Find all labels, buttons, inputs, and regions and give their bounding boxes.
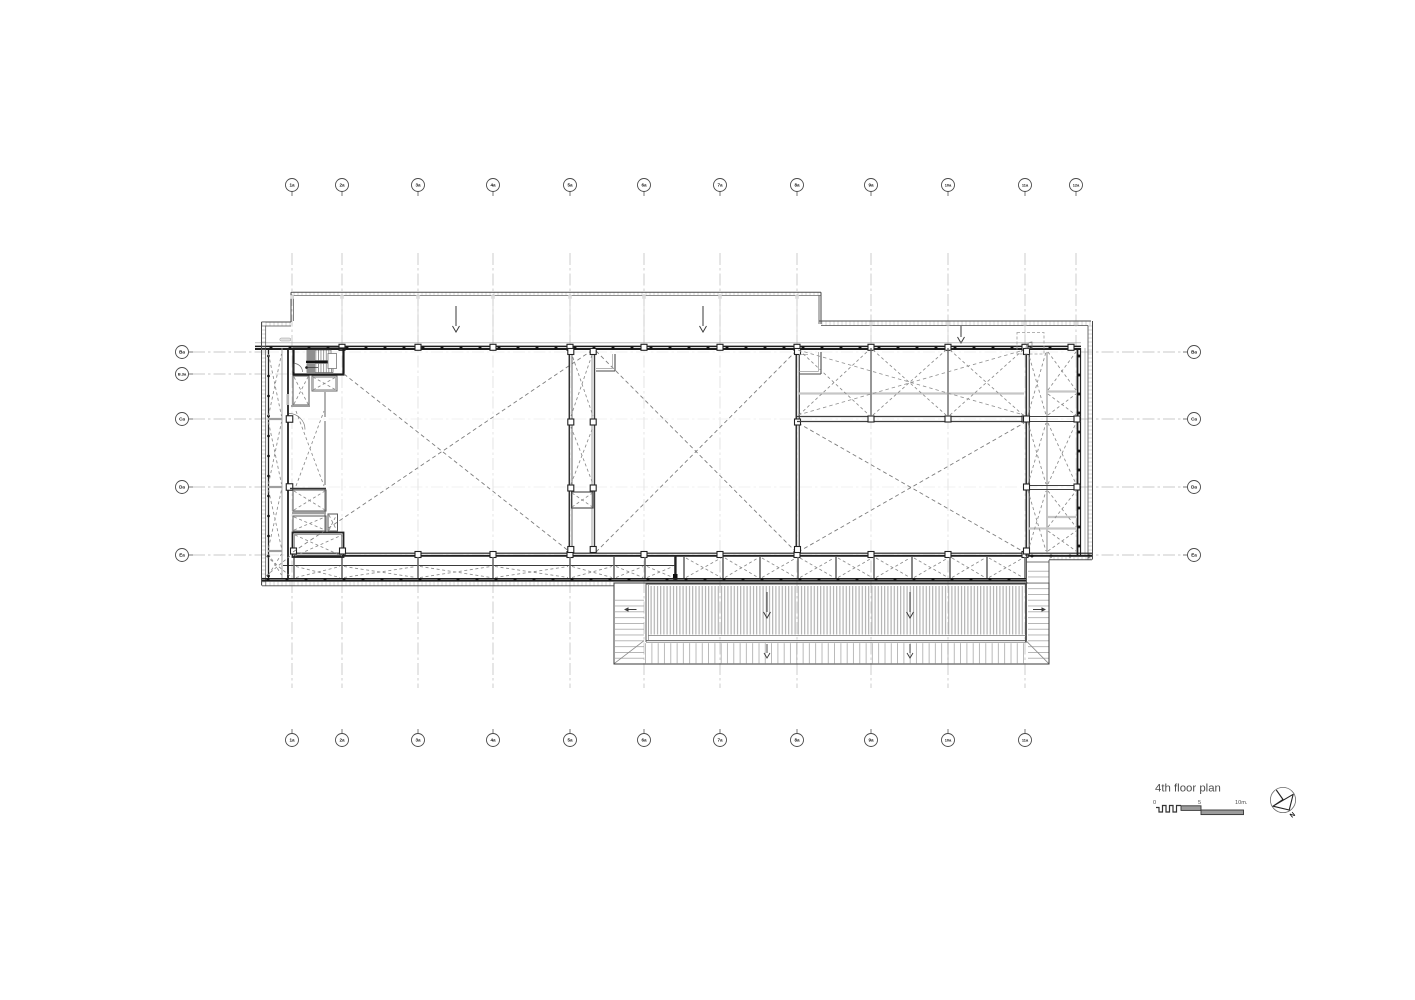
svg-text:Da: Da xyxy=(1191,485,1197,490)
svg-text:3a: 3a xyxy=(415,738,421,743)
svg-text:3a: 3a xyxy=(415,183,421,188)
svg-text:6a: 6a xyxy=(641,183,647,188)
svg-text:8a: 8a xyxy=(794,183,800,188)
svg-text:N: N xyxy=(1289,811,1297,820)
svg-text:10m.: 10m. xyxy=(1235,800,1248,806)
svg-text:5: 5 xyxy=(1198,800,1201,806)
svg-text:7a: 7a xyxy=(717,738,723,743)
svg-text:11a: 11a xyxy=(1022,738,1029,743)
svg-text:9a: 9a xyxy=(868,738,874,743)
svg-text:Ea: Ea xyxy=(1191,553,1197,558)
svg-text:2a: 2a xyxy=(339,183,345,188)
svg-text:11a: 11a xyxy=(1022,183,1029,188)
svg-text:7a: 7a xyxy=(717,183,723,188)
svg-text:9a: 9a xyxy=(868,183,874,188)
svg-text:6a: 6a xyxy=(641,738,647,743)
svg-text:B.3a: B.3a xyxy=(178,372,187,377)
svg-text:Ba: Ba xyxy=(1191,350,1197,355)
svg-text:10a: 10a xyxy=(945,183,952,188)
svg-text:Da: Da xyxy=(179,485,185,490)
svg-text:Ca: Ca xyxy=(1191,417,1197,422)
svg-text:12a: 12a xyxy=(1073,183,1080,188)
svg-text:Ca: Ca xyxy=(179,417,185,422)
svg-text:1a: 1a xyxy=(289,738,295,743)
svg-text:Ea: Ea xyxy=(179,553,185,558)
svg-text:10a: 10a xyxy=(945,738,952,743)
svg-text:5a: 5a xyxy=(567,738,573,743)
svg-text:1a: 1a xyxy=(289,183,295,188)
svg-text:Ba: Ba xyxy=(179,350,185,355)
svg-text:4a: 4a xyxy=(490,183,496,188)
svg-text:4th floor plan: 4th floor plan xyxy=(1155,783,1221,795)
svg-text:5a: 5a xyxy=(567,183,573,188)
svg-text:4a: 4a xyxy=(490,738,496,743)
svg-text:2a: 2a xyxy=(339,738,345,743)
svg-text:8a: 8a xyxy=(794,738,800,743)
svg-text:0: 0 xyxy=(1153,800,1156,806)
